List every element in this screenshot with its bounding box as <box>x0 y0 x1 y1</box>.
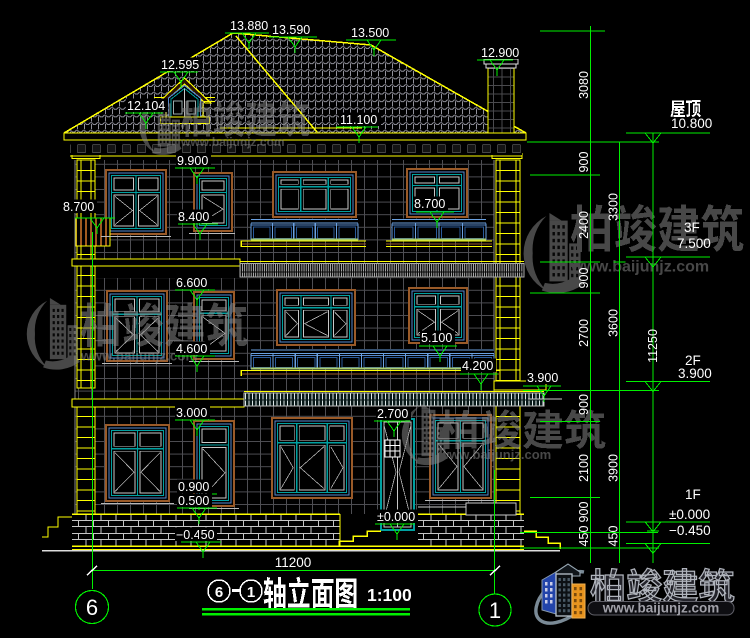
svg-text:4.600: 4.600 <box>176 342 207 356</box>
svg-text:13.500: 13.500 <box>351 26 389 40</box>
svg-text:6: 6 <box>215 584 223 601</box>
svg-text:9.900: 9.900 <box>177 154 208 168</box>
svg-text:1F: 1F <box>685 487 701 502</box>
svg-text:0.900: 0.900 <box>178 480 209 494</box>
svg-text:900: 900 <box>577 152 591 173</box>
svg-text:900: 900 <box>577 394 591 415</box>
svg-text:10.800: 10.800 <box>671 116 712 131</box>
svg-text:11250: 11250 <box>646 329 660 363</box>
svg-text:11200: 11200 <box>275 555 312 570</box>
svg-text:8.700: 8.700 <box>414 197 445 211</box>
svg-text:2100: 2100 <box>577 454 591 482</box>
svg-text:900: 900 <box>577 268 591 289</box>
svg-text:13.880: 13.880 <box>230 19 268 33</box>
svg-text:www.baijunjz.com: www.baijunjz.com <box>438 447 551 462</box>
svg-text:6: 6 <box>86 595 98 620</box>
svg-text:3.000: 3.000 <box>176 406 207 420</box>
svg-text:www.baijunjz.com: www.baijunjz.com <box>602 601 720 616</box>
svg-text:450: 450 <box>607 526 621 547</box>
svg-text:5.100: 5.100 <box>421 331 452 345</box>
svg-text:3.900: 3.900 <box>678 366 712 381</box>
svg-text:2700: 2700 <box>577 319 591 347</box>
svg-text:2400: 2400 <box>577 211 591 239</box>
svg-text:2.700: 2.700 <box>377 407 408 421</box>
svg-text:8.400: 8.400 <box>178 210 209 224</box>
svg-text:±0.000: ±0.000 <box>377 510 415 524</box>
svg-text:1: 1 <box>247 584 255 601</box>
svg-text:450: 450 <box>577 526 591 547</box>
svg-text:3F: 3F <box>684 220 700 235</box>
svg-text:12.595: 12.595 <box>161 58 199 72</box>
svg-text:12.900: 12.900 <box>481 46 519 60</box>
svg-text:www.baijunjz.com: www.baijunjz.com <box>180 135 285 149</box>
svg-text:3600: 3600 <box>607 309 621 337</box>
svg-text:−0.450: −0.450 <box>669 523 711 538</box>
svg-text:−0.450: −0.450 <box>176 528 215 542</box>
svg-text:13.590: 13.590 <box>272 23 310 37</box>
svg-text:3900: 3900 <box>607 454 621 482</box>
svg-text:900: 900 <box>577 502 591 523</box>
svg-text:3300: 3300 <box>607 193 621 221</box>
svg-text:12.104: 12.104 <box>127 99 165 113</box>
svg-text:3080: 3080 <box>577 71 591 99</box>
svg-text:±0.000: ±0.000 <box>669 507 710 522</box>
svg-text:8.700: 8.700 <box>63 200 94 214</box>
svg-text:4.200: 4.200 <box>462 359 493 373</box>
svg-text:11.100: 11.100 <box>340 113 377 127</box>
svg-text:1:100: 1:100 <box>367 585 412 605</box>
svg-text:0.500: 0.500 <box>178 494 209 508</box>
svg-text:6.600: 6.600 <box>176 276 207 290</box>
svg-text:1: 1 <box>489 598 501 623</box>
svg-text:7.500: 7.500 <box>677 236 711 251</box>
svg-text:3.900: 3.900 <box>527 371 558 385</box>
